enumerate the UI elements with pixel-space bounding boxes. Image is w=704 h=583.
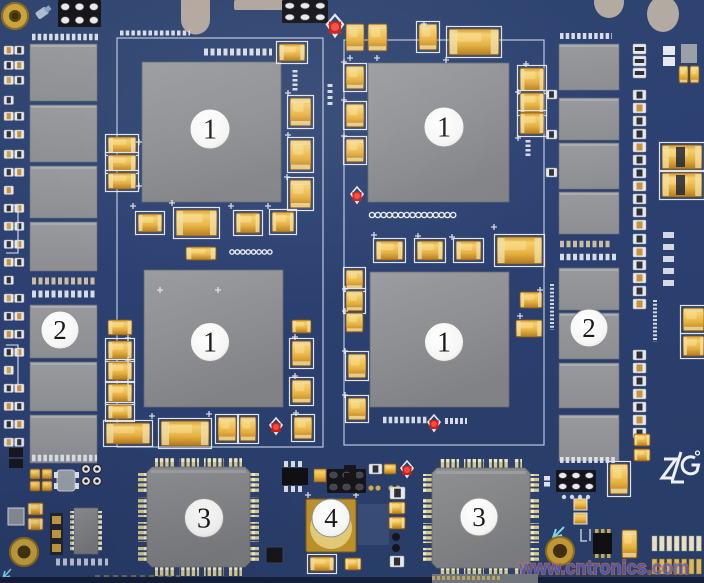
svg-text:1: 1 <box>203 327 217 358</box>
svg-text:2: 2 <box>582 313 596 343</box>
svg-text:www.cntronics.com: www.cntronics.com <box>518 558 689 579</box>
svg-text:2: 2 <box>53 315 67 345</box>
svg-text:3: 3 <box>472 502 486 532</box>
svg-text:1: 1 <box>437 327 451 358</box>
